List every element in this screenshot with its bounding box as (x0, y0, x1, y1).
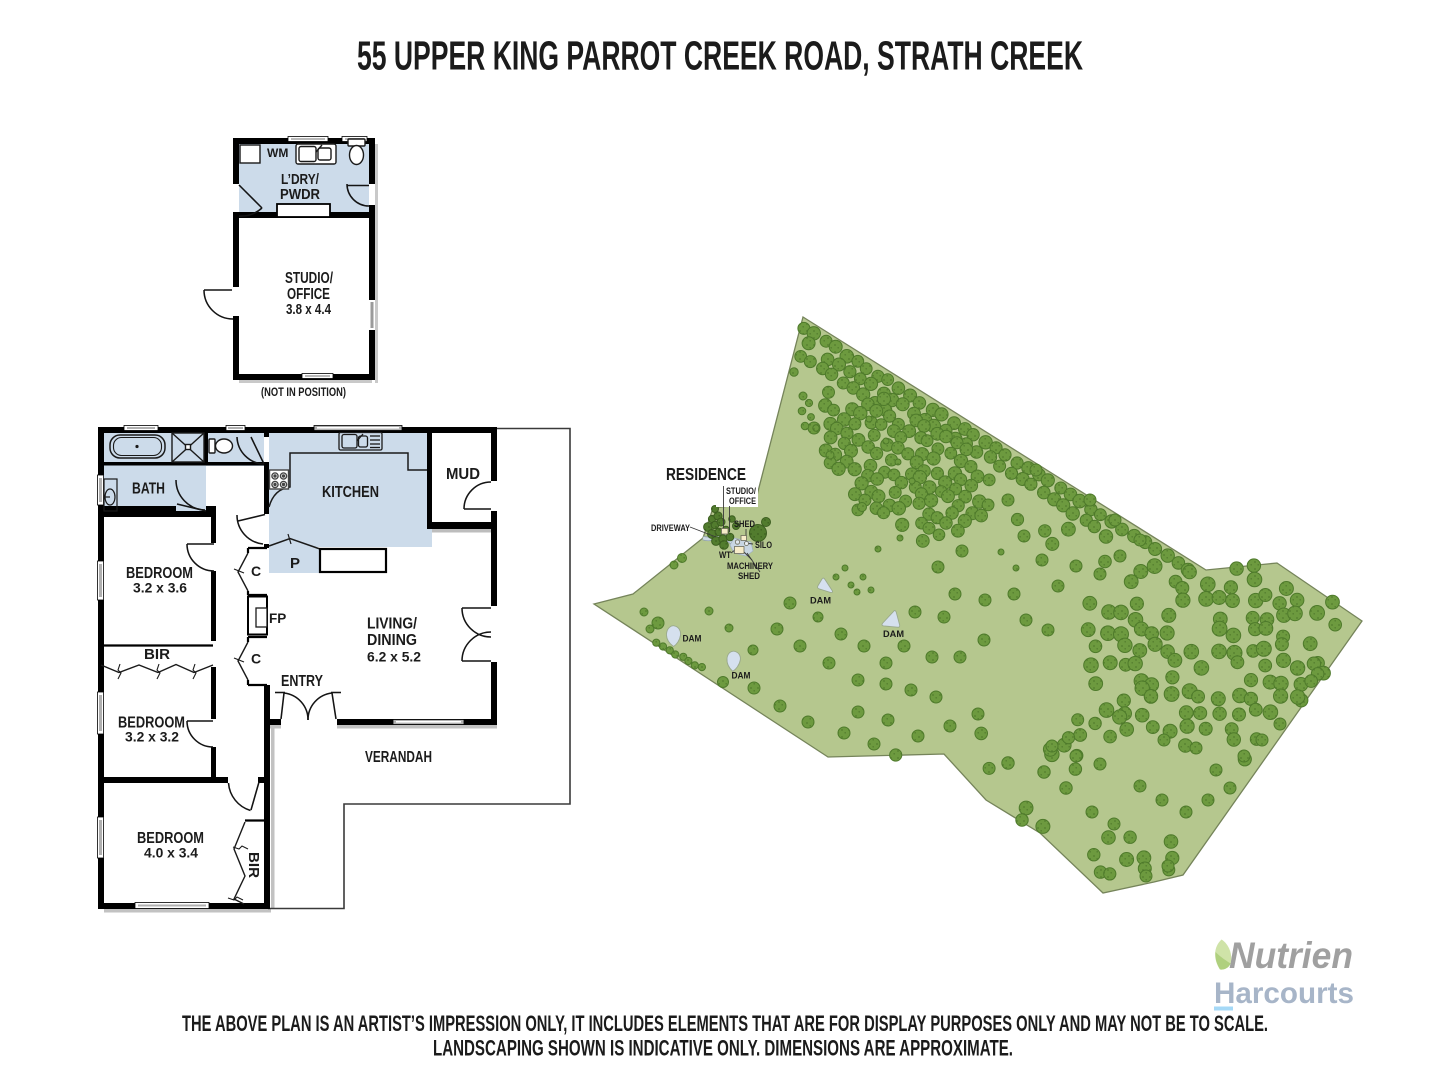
svg-text:WM: WM (267, 146, 288, 160)
svg-text:MUD: MUD (446, 466, 480, 483)
svg-text:DRIVEWAY: DRIVEWAY (651, 523, 690, 533)
svg-text:THE ABOVE PLAN IS AN ARTIST’S: THE ABOVE PLAN IS AN ARTIST’S IMPRESSION… (182, 1011, 1268, 1036)
svg-text:C: C (251, 563, 261, 579)
svg-text:SHED: SHED (738, 571, 760, 581)
svg-text:55 UPPER KING PARROT CREEK ROA: 55 UPPER KING PARROT CREEK ROAD, STRATH … (357, 33, 1083, 79)
svg-text:MACHINERY: MACHINERY (727, 561, 773, 571)
svg-text:PWDR: PWDR (280, 186, 320, 203)
svg-text:BATH: BATH (132, 481, 165, 498)
svg-text:Nutrien: Nutrien (1229, 935, 1353, 976)
svg-text:BIR: BIR (245, 852, 261, 879)
svg-text:3.2 x 3.2: 3.2 x 3.2 (125, 729, 179, 745)
svg-text:4.0 x 3.4: 4.0 x 3.4 (144, 845, 198, 861)
svg-text:WT: WT (719, 550, 731, 560)
svg-text:SHED: SHED (734, 519, 755, 529)
svg-text:ENTRY: ENTRY (281, 673, 324, 690)
svg-text:DAM: DAM (810, 596, 831, 607)
svg-text:OFFICE: OFFICE (729, 496, 756, 506)
svg-text:STUDIO/: STUDIO/ (726, 486, 756, 496)
svg-text:DAM: DAM (883, 629, 904, 640)
svg-text:P: P (290, 555, 300, 572)
svg-text:KITCHEN: KITCHEN (322, 484, 379, 501)
svg-text:OFFICE: OFFICE (287, 286, 330, 303)
svg-text:FP: FP (269, 611, 286, 626)
svg-text:DAM: DAM (732, 671, 751, 682)
svg-text:SILO: SILO (755, 540, 772, 550)
svg-text:BIR: BIR (144, 646, 170, 663)
svg-text:LANDSCAPING SHOWN IS INDICATIV: LANDSCAPING SHOWN IS INDICATIVE ONLY. DI… (433, 1036, 1013, 1061)
svg-text:RESIDENCE: RESIDENCE (666, 464, 746, 484)
svg-text:DAM: DAM (683, 634, 702, 645)
svg-text:DINING: DINING (367, 632, 417, 649)
svg-text:3.2 x 3.6: 3.2 x 3.6 (133, 580, 187, 596)
svg-text:6.2 x 5.2: 6.2 x 5.2 (367, 649, 421, 665)
svg-text:STUDIO/: STUDIO/ (285, 270, 334, 287)
svg-text:3.8 x 4.4: 3.8 x 4.4 (286, 302, 331, 318)
svg-text:VERANDAH: VERANDAH (365, 749, 432, 766)
svg-text:Harcourts: Harcourts (1214, 977, 1354, 1010)
svg-text:LIVING/: LIVING/ (367, 616, 418, 633)
svg-text:C: C (251, 651, 261, 667)
svg-text:(NOT IN POSITION): (NOT IN POSITION) (261, 387, 346, 399)
